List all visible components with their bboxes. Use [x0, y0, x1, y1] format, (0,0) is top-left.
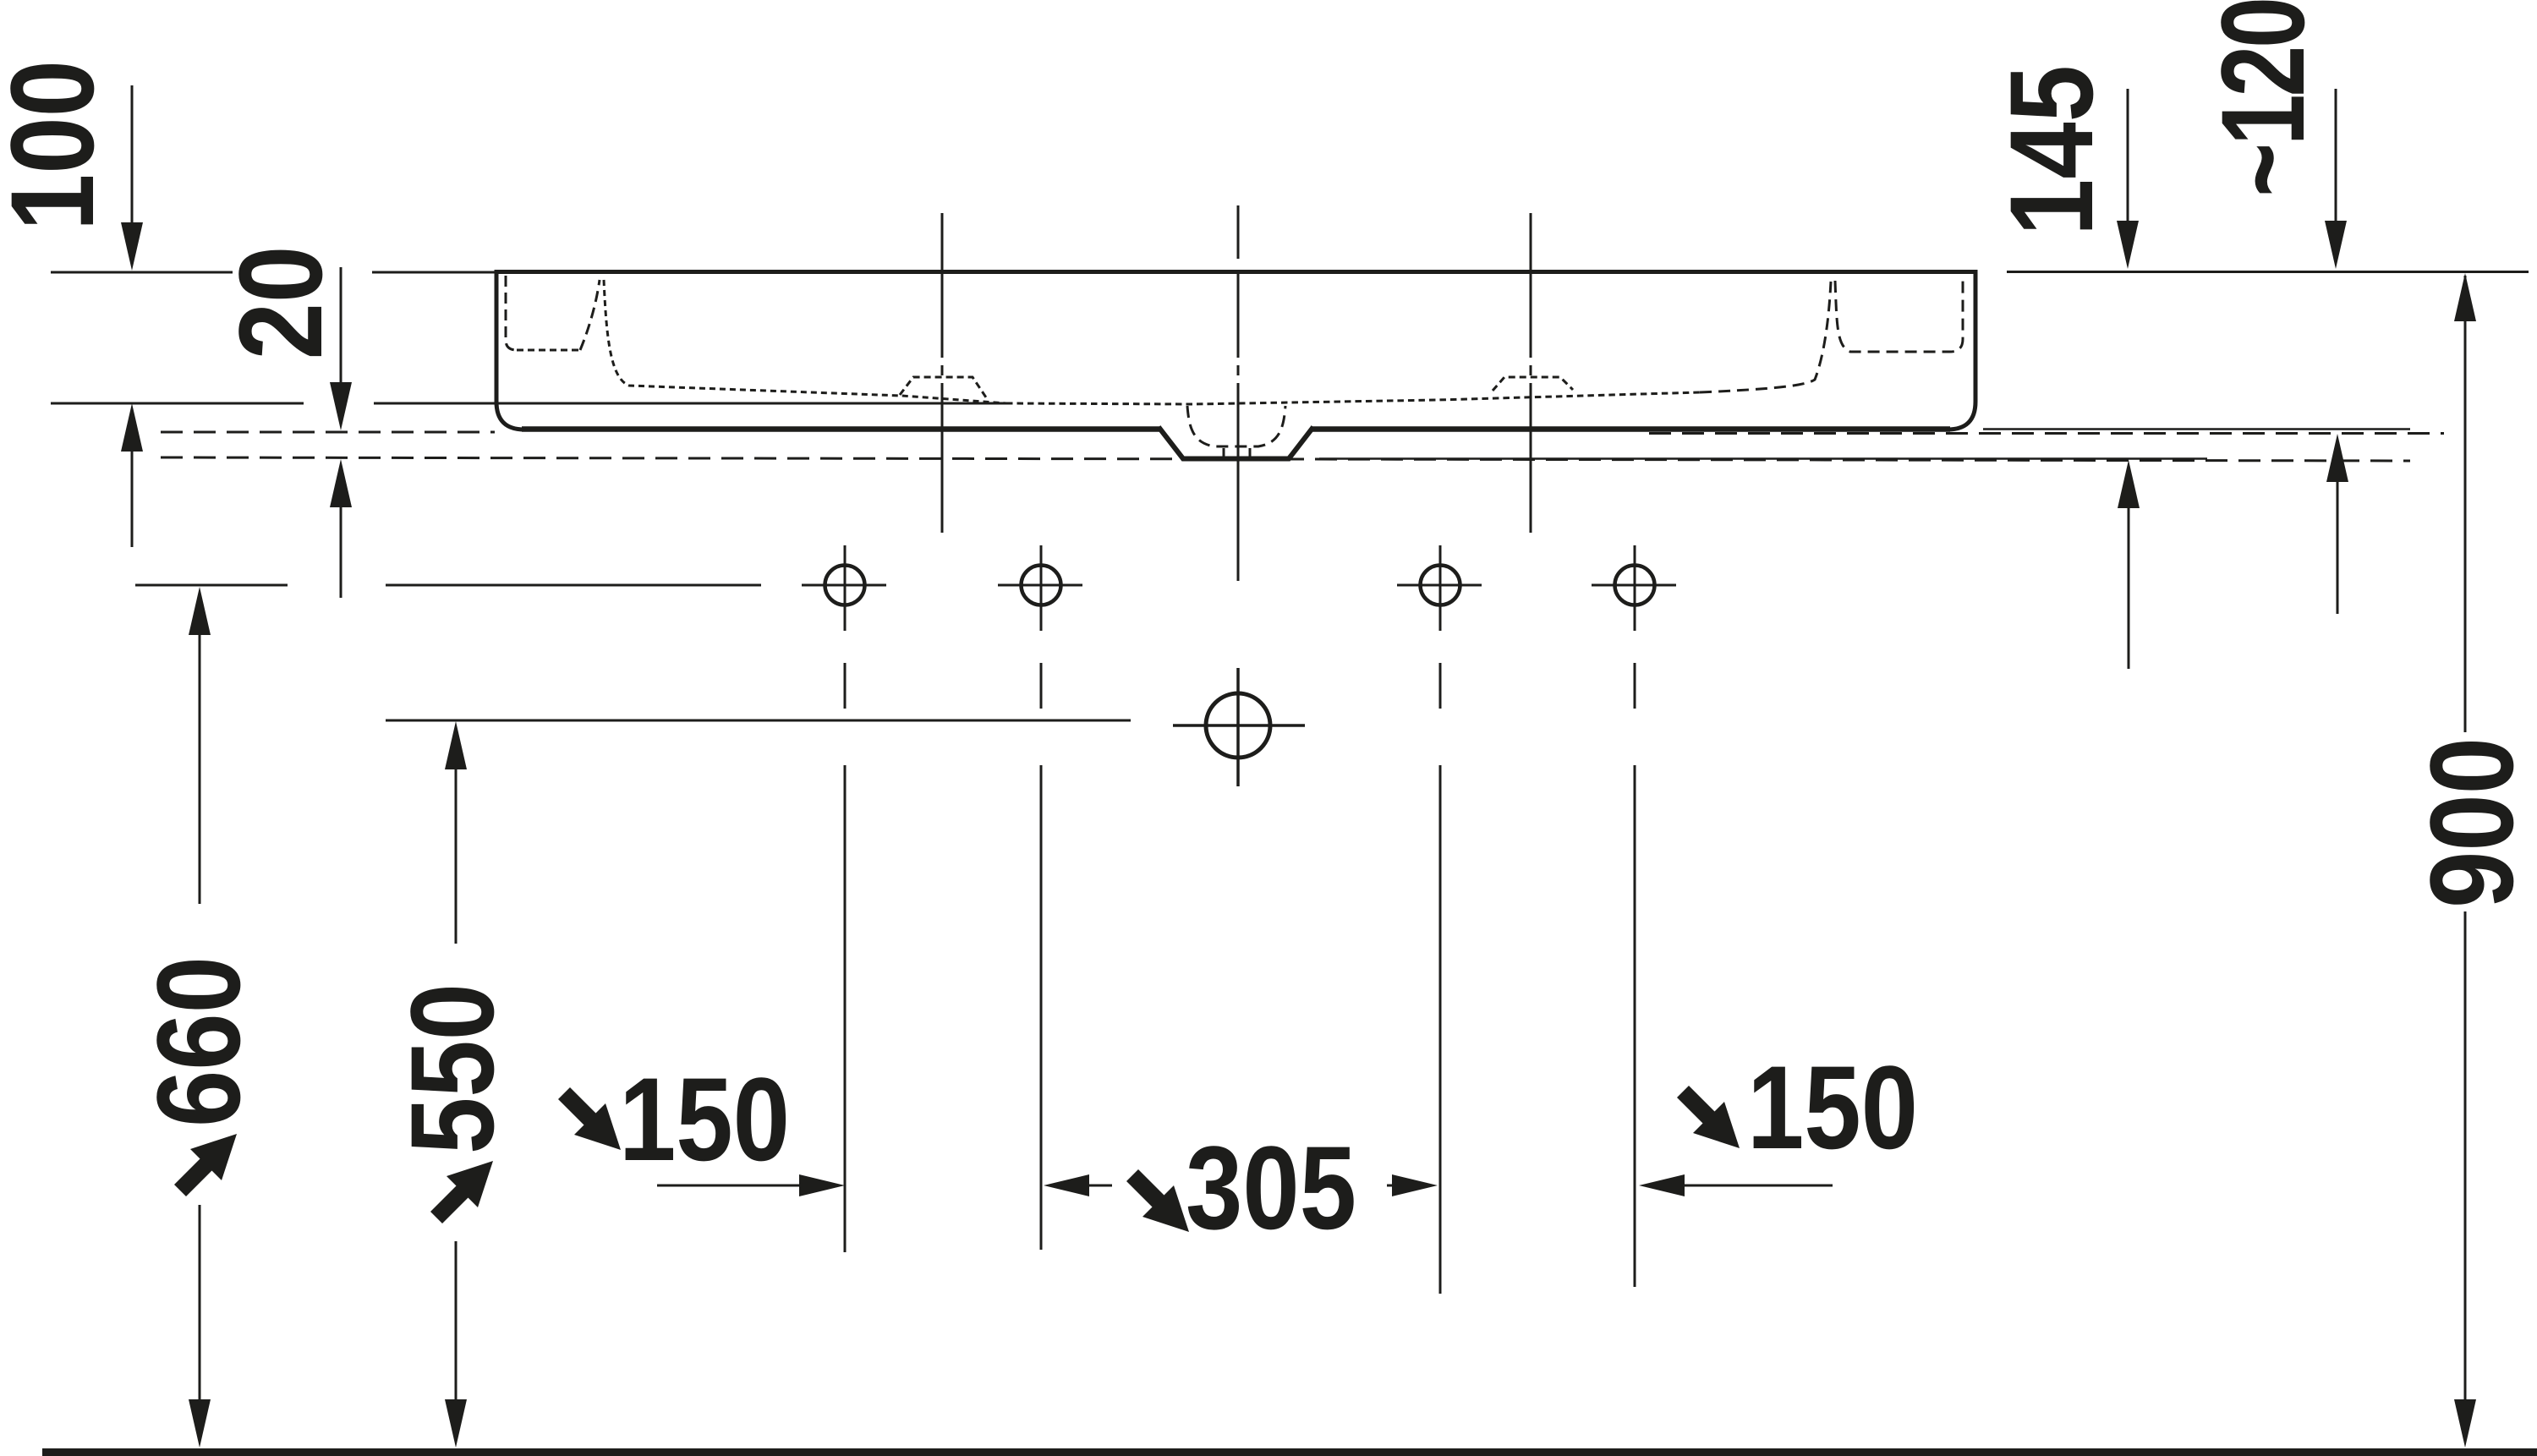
svg-text:~120: ~120	[2196, 0, 2329, 197]
svg-text:20: 20	[215, 246, 347, 360]
svg-text:150: 150	[1747, 1042, 1918, 1174]
svg-text:100: 100	[0, 60, 118, 231]
svg-text:900: 900	[2406, 737, 2537, 908]
svg-text:305: 305	[1186, 1122, 1356, 1254]
svg-text:550: 550	[386, 983, 518, 1154]
svg-text:660: 660	[133, 956, 265, 1127]
svg-text:150: 150	[619, 1054, 790, 1185]
svg-text:145: 145	[1986, 65, 2118, 236]
